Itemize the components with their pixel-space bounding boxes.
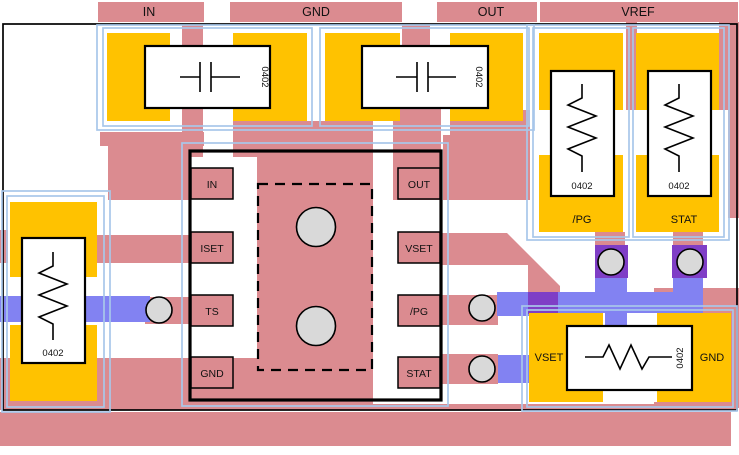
net-label-gnd: GND [302,5,330,19]
net-label-in: IN [143,5,156,19]
ic-pin-out-label: OUT [408,179,431,191]
trace-stat-stub[interactable] [498,355,530,383]
pcb-layout-canvas: 0402 0402 0402 /PG 0402 STAT 0402 0402 V… [0,0,739,450]
cap-out-body[interactable] [362,46,488,108]
res-bottom-body[interactable] [567,326,692,390]
net-label-vref: VREF [621,5,655,19]
res-stat-pad-label: STAT [671,214,698,226]
net-label-out: OUT [478,5,505,19]
cap-out-size-label: 0402 [473,66,484,87]
pour-in-finger[interactable] [108,146,190,200]
ic-pin-gnd-label: GND [200,368,224,380]
pour-iset-band[interactable] [90,235,191,263]
via-pg-pin[interactable] [469,295,495,321]
trace-pg-end-in-notch[interactable] [605,311,627,325]
res-bottom-gnd-label: GND [700,352,725,364]
via-thermal-2[interactable] [297,307,336,346]
res-bottom-size-label: 0402 [675,347,686,368]
ic-pin-stat-label: STAT [406,368,432,380]
cap-in-size-label: 0402 [259,66,270,87]
via-thermal-1[interactable] [297,208,336,247]
ic-pin-iset-label: ISET [200,243,224,255]
res-stat-size-label: 0402 [668,181,689,192]
via-pg-res[interactable] [598,249,624,275]
pour-vref-mid-strip[interactable] [626,22,637,110]
via-ts[interactable] [146,297,172,323]
pour-out-block[interactable] [443,135,530,200]
via-stat-pin[interactable] [469,356,495,382]
pour-in-band[interactable] [100,132,204,146]
ic-pin-vset-label: VSET [405,243,433,255]
res-left-size-label: 0402 [42,348,63,359]
res-bottom-vset-label: VSET [535,352,564,364]
res-bottom-bottom-notch [603,390,657,402]
cap-in-body[interactable] [145,46,270,108]
via-stat-res[interactable] [677,249,703,275]
res-pg-size-label: 0402 [571,181,592,192]
ic-pin-in-label: IN [207,179,218,191]
ic-pin-ts-label: TS [205,306,218,318]
pour-gnd-below-outline[interactable] [0,412,731,446]
ic-pin-pg-label: /PG [410,306,428,318]
res-pg-pad-label: /PG [573,214,592,226]
